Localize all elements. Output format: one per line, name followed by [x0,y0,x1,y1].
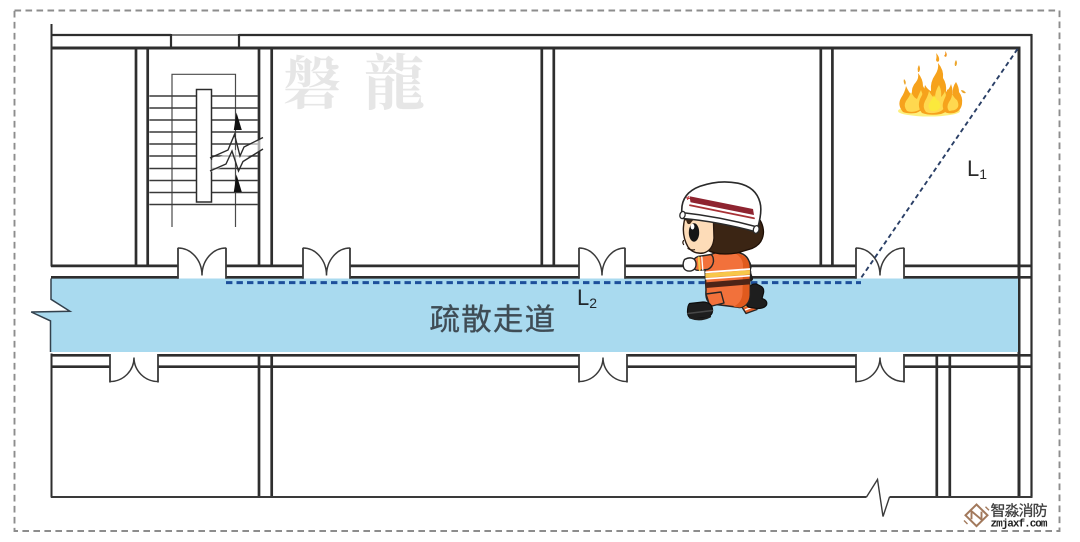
svg-text:zmjaxf.com: zmjaxf.com [991,519,1048,531]
